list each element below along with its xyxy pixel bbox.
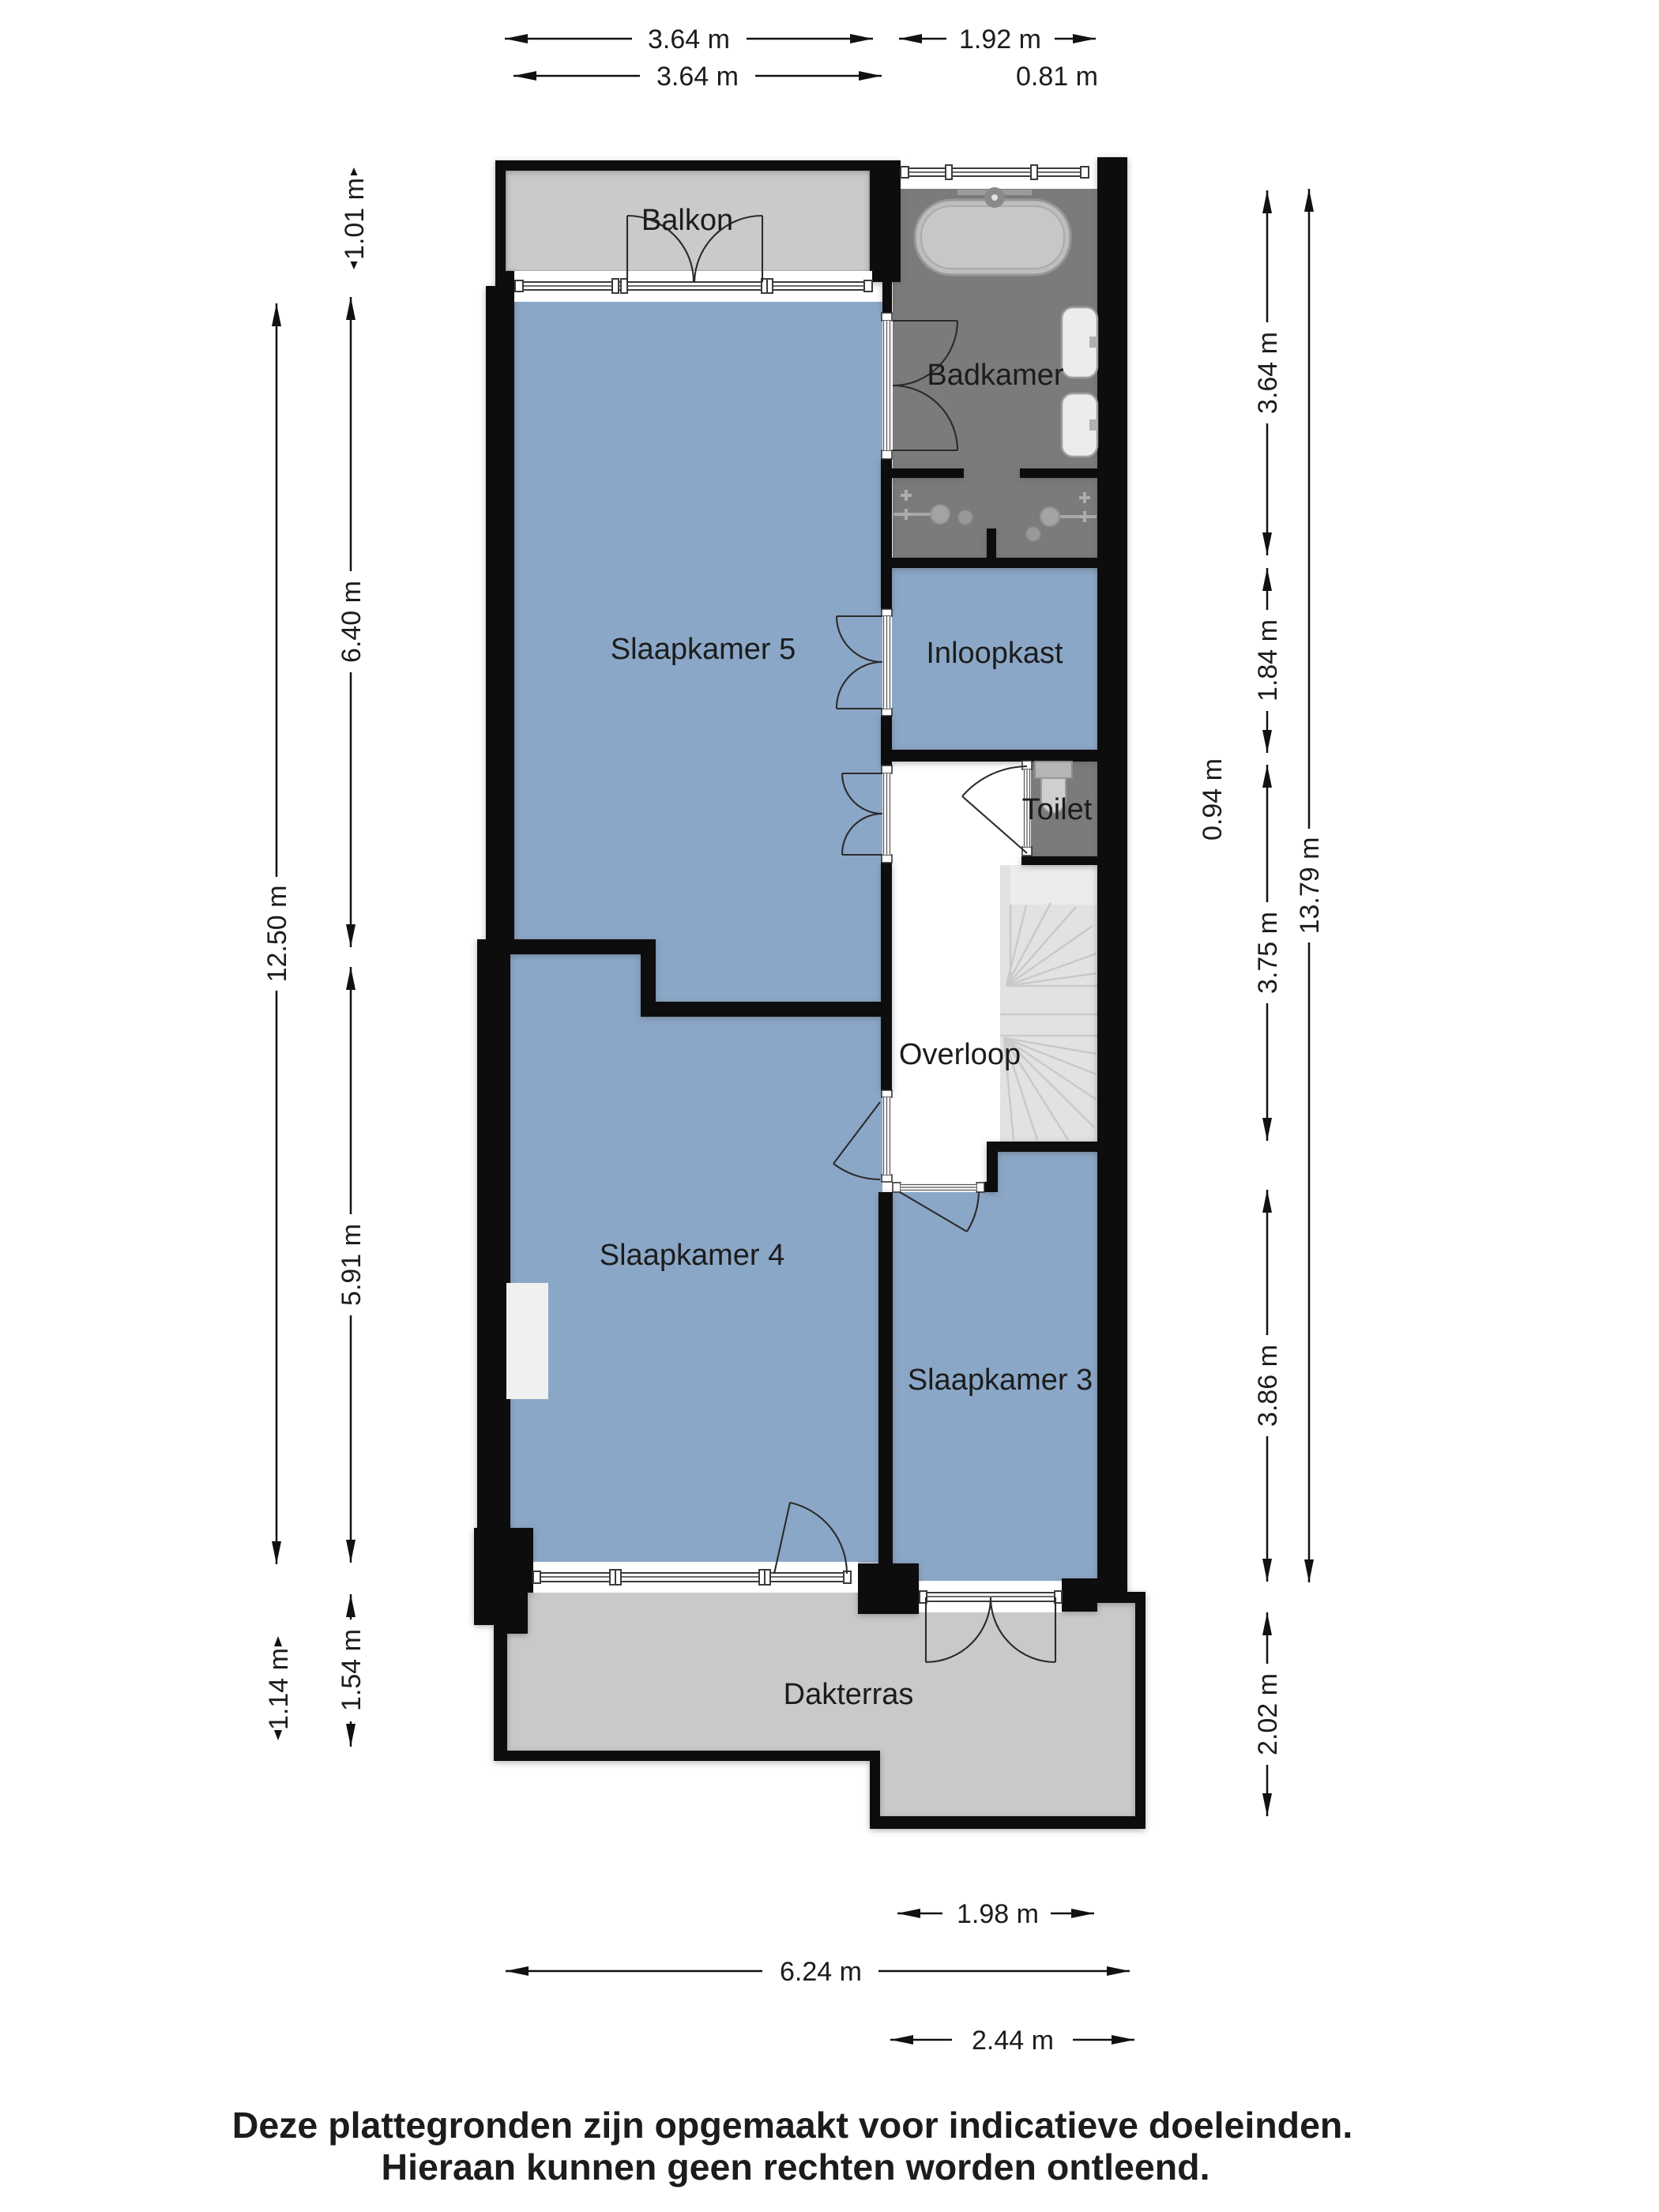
- svg-text:0.81 m: 0.81 m: [1016, 62, 1098, 92]
- svg-text:3.86 m: 3.86 m: [1253, 1345, 1283, 1427]
- svg-text:1.54 m: 1.54 m: [337, 1629, 367, 1711]
- svg-text:3.64 m: 3.64 m: [1253, 332, 1283, 414]
- svg-text:3.64 m: 3.64 m: [656, 62, 739, 92]
- svg-text:Slaapkamer 4: Slaapkamer 4: [600, 1239, 784, 1272]
- svg-text:0.94 m: 0.94 m: [1198, 758, 1228, 841]
- svg-text:Inloopkast: Inloopkast: [926, 637, 1063, 670]
- svg-text:Overloop: Overloop: [899, 1038, 1021, 1071]
- svg-text:12.50 m: 12.50 m: [262, 886, 292, 983]
- svg-text:3.75 m: 3.75 m: [1253, 912, 1283, 994]
- svg-text:5.91 m: 5.91 m: [337, 1224, 367, 1306]
- svg-text:1.84 m: 1.84 m: [1253, 619, 1283, 702]
- svg-text:1.01 m: 1.01 m: [340, 178, 370, 260]
- svg-text:Balkon: Balkon: [641, 204, 733, 237]
- svg-text:1.14 m: 1.14 m: [264, 1648, 294, 1730]
- svg-text:3.64 m: 3.64 m: [648, 24, 730, 55]
- svg-text:Slaapkamer 5: Slaapkamer 5: [611, 633, 796, 666]
- svg-text:13.79 m: 13.79 m: [1295, 837, 1325, 935]
- svg-text:Slaapkamer 3: Slaapkamer 3: [908, 1364, 1093, 1397]
- svg-text:Dakterras: Dakterras: [784, 1678, 914, 1711]
- svg-text:2.44 m: 2.44 m: [972, 2026, 1054, 2056]
- svg-text:1.98 m: 1.98 m: [957, 1899, 1039, 1929]
- svg-text:6.40 m: 6.40 m: [337, 581, 367, 663]
- svg-text:Deze plattegronden zijn opgema: Deze plattegronden zijn opgemaakt voor i…: [232, 2105, 1353, 2146]
- svg-text:Hieraan kunnen geen rechten wo: Hieraan kunnen geen rechten worden ontle…: [381, 2146, 1209, 2188]
- svg-text:Toilet: Toilet: [1022, 793, 1093, 826]
- svg-text:2.02 m: 2.02 m: [1253, 1673, 1283, 1755]
- svg-text:Badkamer: Badkamer: [927, 359, 1064, 392]
- svg-text:1.92 m: 1.92 m: [959, 24, 1041, 55]
- svg-text:6.24 m: 6.24 m: [780, 1957, 862, 1987]
